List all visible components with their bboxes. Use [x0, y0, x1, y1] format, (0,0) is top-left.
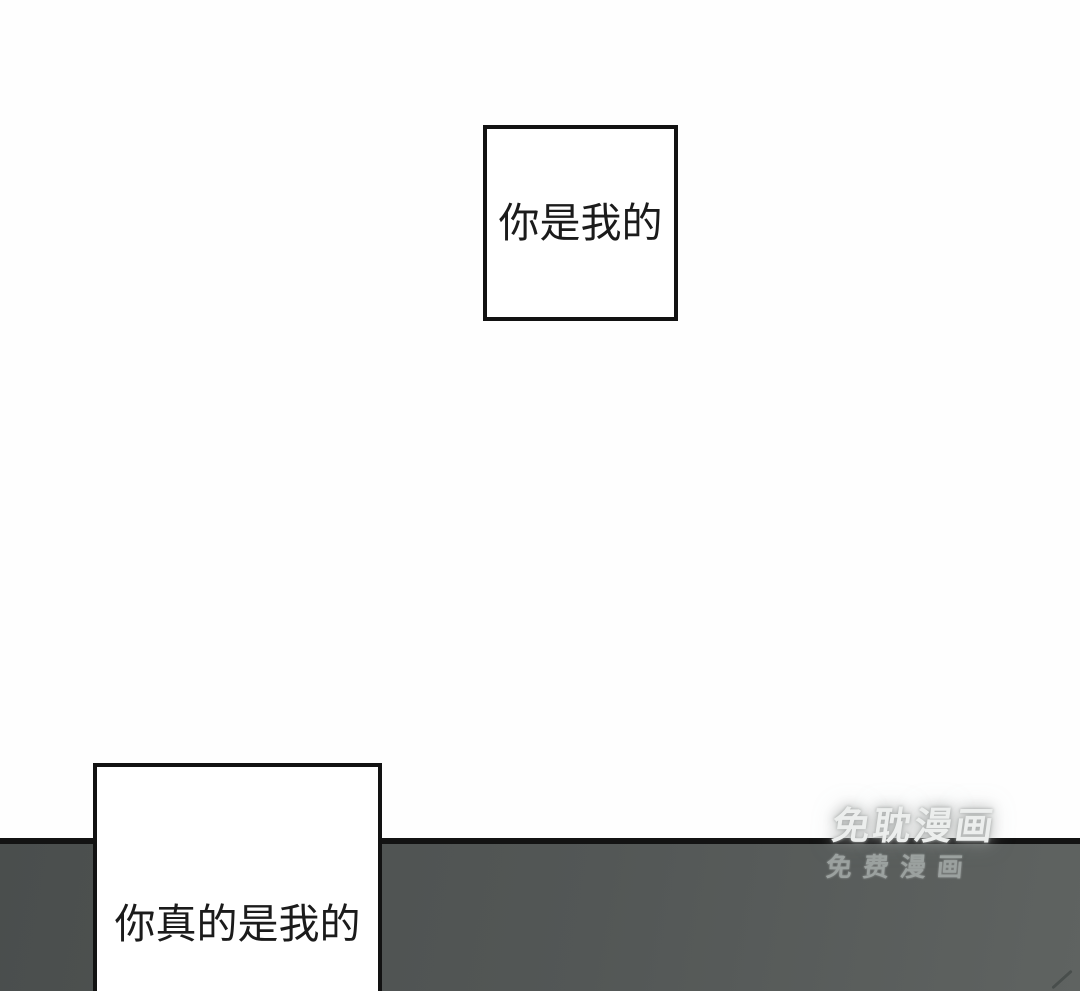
speech-bubble-bottom: 你真的是我的: [93, 763, 382, 991]
comic-page: 你是我的 你真的是我的 免耽漫画 免费漫画: [0, 0, 1080, 991]
speech-text-bottom: 你真的是我的: [97, 902, 378, 946]
speech-text-top: 你是我的: [499, 201, 663, 245]
speech-bubble-top: 你是我的: [483, 125, 678, 321]
